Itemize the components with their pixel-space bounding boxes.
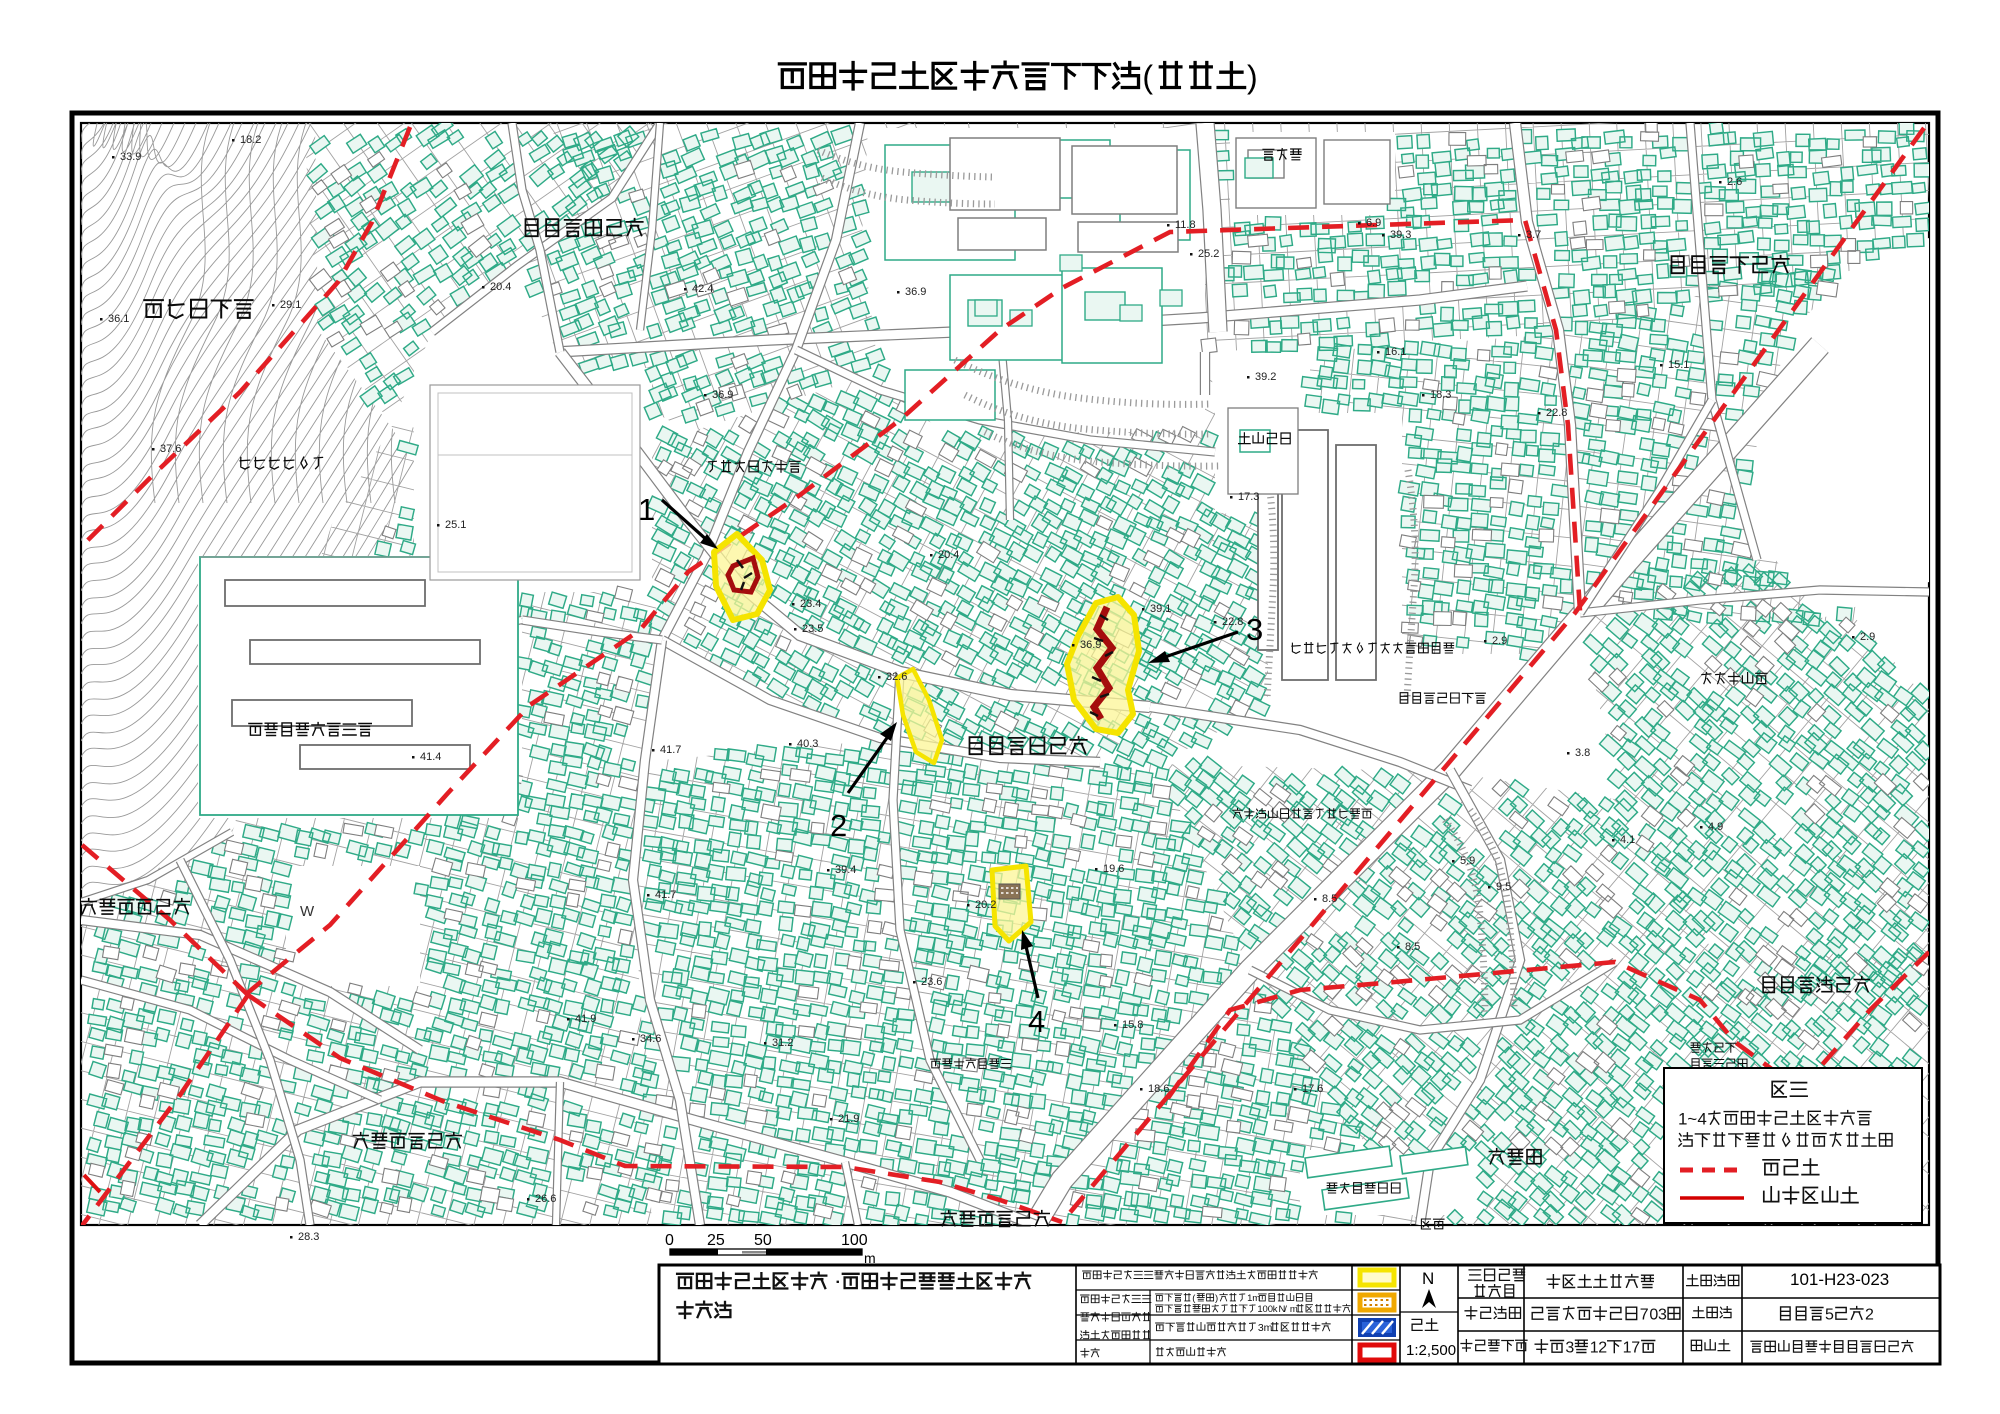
svg-text:18.2: 18.2	[240, 134, 261, 146]
svg-text:20.2: 20.2	[975, 899, 996, 911]
svg-text:22.8: 22.8	[1222, 616, 1243, 628]
svg-text:11.8: 11.8	[1175, 219, 1196, 231]
svg-text:26.6: 26.6	[535, 1193, 556, 1205]
svg-text:32.6: 32.6	[886, 671, 907, 683]
svg-text:18.3: 18.3	[1430, 389, 1451, 401]
svg-text:19.6: 19.6	[1103, 863, 1124, 875]
svg-text:3.7: 3.7	[1526, 229, 1541, 241]
svg-text:17.3: 17.3	[1238, 491, 1259, 503]
svg-text:8.5: 8.5	[1405, 941, 1420, 953]
svg-text:34.6: 34.6	[640, 1033, 661, 1045]
svg-text:9.5: 9.5	[1496, 881, 1511, 893]
svg-text:4: 4	[1697, 1110, 1706, 1129]
svg-text:40.3: 40.3	[797, 738, 818, 750]
svg-text:39.1: 39.1	[1150, 603, 1171, 615]
svg-text:36.1: 36.1	[108, 313, 129, 325]
svg-text:100: 100	[841, 1232, 868, 1249]
svg-text:31.2: 31.2	[772, 1037, 793, 1049]
svg-text:8.5: 8.5	[1322, 893, 1337, 905]
svg-text:41.7: 41.7	[660, 744, 681, 756]
svg-text:37.6: 37.6	[160, 443, 181, 455]
svg-text:/: /	[1284, 1304, 1287, 1315]
svg-text:16.1: 16.1	[1385, 346, 1406, 358]
svg-text:7: 7	[1631, 1340, 1640, 1357]
svg-text:25: 25	[707, 1232, 725, 1249]
svg-text:39.2: 39.2	[1255, 371, 1276, 383]
svg-text:4.9: 4.9	[1708, 821, 1723, 833]
svg-text:1: 1	[1623, 1340, 1632, 1357]
svg-text:1: 1	[1678, 1110, 1687, 1129]
svg-text:6.9: 6.9	[1366, 217, 1381, 229]
svg-text:20.4: 20.4	[938, 549, 959, 561]
svg-text:2.9: 2.9	[1492, 635, 1507, 647]
svg-text:41.7: 41.7	[655, 889, 676, 901]
svg-text:4.1: 4.1	[1620, 834, 1635, 846]
svg-text:18.6: 18.6	[1148, 1083, 1169, 1095]
svg-text:28.3: 28.3	[298, 1231, 319, 1243]
svg-text:3: 3	[1246, 612, 1263, 647]
svg-text:3.8: 3.8	[1575, 747, 1590, 759]
svg-text:5.9: 5.9	[1460, 855, 1475, 867]
svg-text:3: 3	[1565, 1340, 1574, 1357]
svg-text:1: 1	[638, 492, 655, 527]
svg-text:23.4: 23.4	[800, 598, 821, 610]
svg-text:7: 7	[1640, 1307, 1649, 1324]
svg-text:15.1: 15.1	[1668, 359, 1689, 371]
svg-text:25.2: 25.2	[1198, 248, 1219, 260]
svg-text:1:2,500: 1:2,500	[1406, 1342, 1456, 1359]
svg-text:2: 2	[1865, 1307, 1874, 1324]
svg-text:(: (	[1142, 59, 1153, 95]
svg-text:15.8: 15.8	[1122, 1019, 1143, 1031]
svg-text:25.1: 25.1	[445, 519, 466, 531]
svg-text:33.9: 33.9	[120, 151, 141, 163]
svg-text:41.4: 41.4	[420, 751, 441, 763]
svg-text:5: 5	[1825, 1307, 1834, 1324]
svg-text:N: N	[1422, 1269, 1434, 1288]
svg-text:2.9: 2.9	[1860, 631, 1875, 643]
svg-text:22.8: 22.8	[1546, 407, 1567, 419]
svg-text:42.4: 42.4	[692, 283, 713, 295]
svg-text:2.6: 2.6	[1727, 176, 1742, 188]
svg-text:39.4: 39.4	[835, 864, 856, 876]
svg-text:36.9: 36.9	[712, 389, 733, 401]
svg-text:41.9: 41.9	[575, 1013, 596, 1025]
svg-text:~: ~	[1687, 1110, 1697, 1129]
svg-text:2: 2	[1598, 1340, 1607, 1357]
svg-text:): )	[1247, 59, 1258, 95]
svg-text:50: 50	[754, 1232, 772, 1249]
svg-text:): )	[1215, 1293, 1218, 1304]
svg-text:20.4: 20.4	[490, 281, 511, 293]
svg-text:17.6: 17.6	[1302, 1083, 1323, 1095]
svg-text:36.9: 36.9	[1080, 639, 1101, 651]
svg-text:29.1: 29.1	[280, 299, 301, 311]
svg-text:23.6: 23.6	[921, 976, 942, 988]
svg-text:4: 4	[1028, 1004, 1045, 1039]
svg-text:2: 2	[830, 808, 847, 843]
svg-text:0: 0	[665, 1232, 674, 1249]
svg-text:3: 3	[1658, 1307, 1667, 1324]
svg-text:101-H23-023: 101-H23-023	[1790, 1270, 1889, 1289]
svg-text:36.9: 36.9	[905, 286, 926, 298]
svg-text:21.9: 21.9	[838, 1113, 859, 1125]
svg-text:39.3: 39.3	[1390, 229, 1411, 241]
svg-text:k: k	[1273, 1304, 1278, 1315]
svg-text:23.5: 23.5	[802, 623, 823, 635]
svg-text:W: W	[300, 903, 315, 920]
